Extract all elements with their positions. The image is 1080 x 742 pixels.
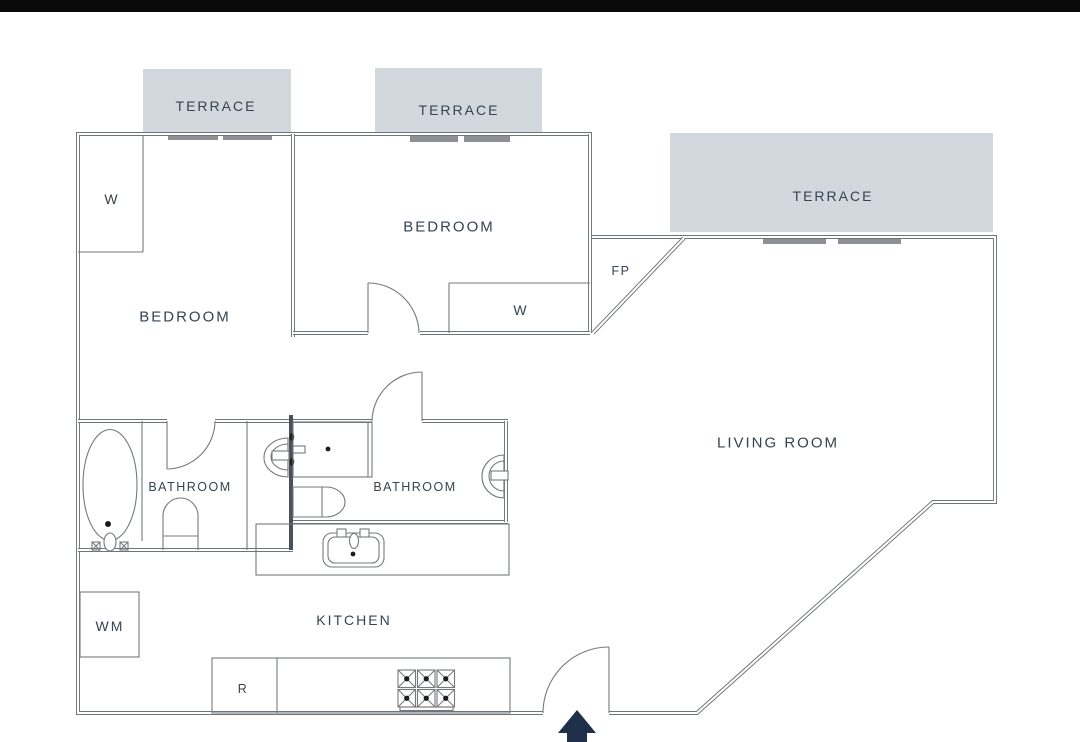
bathroom-2-door xyxy=(372,372,422,421)
washing-machine: WM xyxy=(80,592,139,657)
bathtub-icon xyxy=(83,430,137,552)
wardrobe-2: W xyxy=(449,283,590,333)
bedroom-1-label: BEDROOM xyxy=(139,309,231,326)
wardrobe-2-label: W xyxy=(513,302,528,318)
shower-icon xyxy=(293,422,372,477)
entrance-door xyxy=(543,647,609,713)
faucet-icon xyxy=(350,534,359,549)
faucet-handle-icon xyxy=(360,529,369,537)
washing-machine-label: WM xyxy=(96,618,125,634)
terrace-3: TERRACE xyxy=(670,133,993,244)
terrace-1-label: TERRACE xyxy=(176,98,257,114)
bathroom-2-label: BATHROOM xyxy=(373,480,456,494)
terrace-2-label: TERRACE xyxy=(419,102,500,118)
refrigerator-label: R xyxy=(238,682,249,696)
bedroom-2-door xyxy=(368,283,419,333)
fireplace-label: FP xyxy=(612,264,631,278)
bedroom-2-label: BEDROOM xyxy=(403,219,495,236)
wardrobe-1-label: W xyxy=(104,191,119,207)
bathroom-1-label: BATHROOM xyxy=(148,480,231,494)
faucet-handle-icon xyxy=(337,529,346,537)
floor-plan-canvas: TERRACE TERRACE TERRACE xyxy=(0,0,1080,742)
top-black-bar xyxy=(0,0,1080,12)
terrace-3-label: TERRACE xyxy=(793,188,874,204)
kitchen-lower-counter: R xyxy=(212,658,510,713)
toilet-1-icon xyxy=(163,498,198,550)
stove-icon xyxy=(398,670,455,711)
wardrobe-1: W xyxy=(78,136,143,252)
floor-plan-page: TERRACE TERRACE TERRACE xyxy=(0,0,1080,742)
sink-2-icon xyxy=(482,455,508,498)
kitchen-sink-counter xyxy=(256,524,509,575)
terrace-1: TERRACE xyxy=(143,69,291,140)
kitchen-label: KITCHEN xyxy=(316,612,391,628)
toilet-2-icon xyxy=(293,487,345,517)
terrace-2: TERRACE xyxy=(375,68,542,142)
window-bar xyxy=(410,135,458,142)
bathroom-1-door xyxy=(167,421,215,469)
living-room-label: LIVING ROOM xyxy=(717,435,839,452)
window-bar xyxy=(464,135,510,142)
